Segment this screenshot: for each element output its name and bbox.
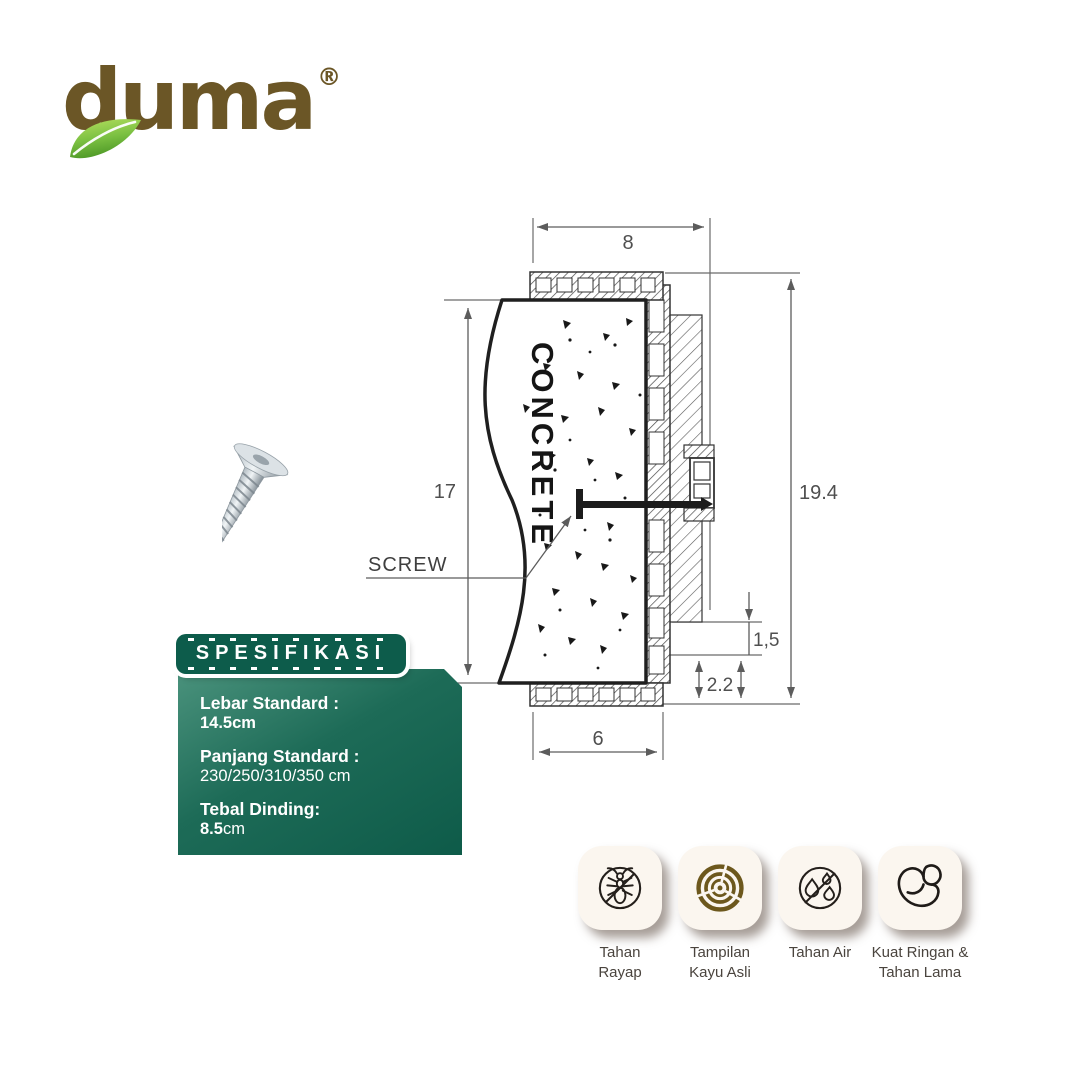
dim-inset-upper-label: 1,5 (753, 630, 779, 651)
dim-top-label: 8 (622, 232, 633, 254)
registered-mark: ® (317, 63, 341, 91)
specification-panel: SPESIFIKASI Lebar Standard : 14.5cm Panj… (176, 634, 462, 855)
feature-termite-resistant: Tahan Rayap (570, 846, 670, 982)
top-panel-section (530, 272, 663, 300)
dim-bottom-label: 6 (592, 728, 603, 750)
concrete-label: CONCRETE (525, 342, 560, 548)
dim-left-label: 17 (434, 481, 456, 503)
feature-label: Tahan Rayap (598, 943, 641, 982)
feature-label-line: Kayu Asli (689, 963, 751, 983)
feature-card (578, 846, 662, 930)
feature-card (778, 846, 862, 930)
wood-grain-icon (692, 860, 748, 916)
brand-name: duma (62, 51, 314, 149)
muscle-icon (892, 860, 948, 916)
spec-value-unit: cm (223, 820, 245, 838)
feature-label: Kuat Ringan & Tahan Lama (872, 943, 969, 982)
spec-item-panjang: Panjang Standard : 230/250/310/350 cm (200, 746, 440, 786)
feature-label-line: Tahan Lama (872, 963, 969, 983)
feature-label: Tahan Air (789, 943, 852, 963)
feature-label-line: Rayap (598, 963, 641, 983)
spec-label: Lebar Standard : (200, 693, 440, 713)
spec-label: Panjang Standard : (200, 746, 440, 766)
dim-inset-lower-label: 2.2 (707, 675, 733, 696)
concrete-section (485, 300, 646, 683)
spec-item-lebar: Lebar Standard : 14.5cm (200, 693, 440, 733)
feature-strong-durable: Kuat Ringan & Tahan Lama (870, 846, 970, 982)
dim-right-label: 19.4 (799, 482, 838, 504)
spec-header: SPESIFIKASI (176, 634, 406, 674)
feature-card (878, 846, 962, 930)
brand-logo: duma® (62, 58, 338, 142)
feature-label: Tampilan Kayu Asli (689, 943, 751, 982)
feature-label-line: Kuat Ringan & (872, 943, 969, 963)
spec-value: 230/250/310/350 cm (200, 766, 440, 786)
feature-card (678, 846, 762, 930)
screw-label: SCREW (368, 554, 447, 576)
spec-value: 8.5cm (200, 819, 440, 839)
product-sheet: duma® (0, 0, 1080, 1080)
feature-label-line: Tampilan (689, 943, 751, 963)
bottom-panel-section (530, 683, 663, 706)
termite-icon (592, 860, 648, 916)
spec-item-tebal: Tebal Dinding: 8.5cm (200, 799, 440, 839)
spec-value: 14.5cm (200, 713, 440, 733)
screw-photo (222, 438, 352, 608)
feature-water-resistant: Tahan Air (770, 846, 870, 982)
feature-real-wood-look: Tampilan Kayu Asli (670, 846, 770, 982)
spec-label: Tebal Dinding: (200, 799, 440, 819)
spec-value-number: 8.5 (200, 820, 223, 838)
feature-label-line: Tahan (598, 943, 641, 963)
water-resistant-icon (792, 860, 848, 916)
feature-label-line: Tahan Air (789, 943, 852, 963)
feature-row: Tahan Rayap (570, 846, 970, 982)
spec-body: Lebar Standard : 14.5cm Panjang Standard… (178, 669, 462, 855)
